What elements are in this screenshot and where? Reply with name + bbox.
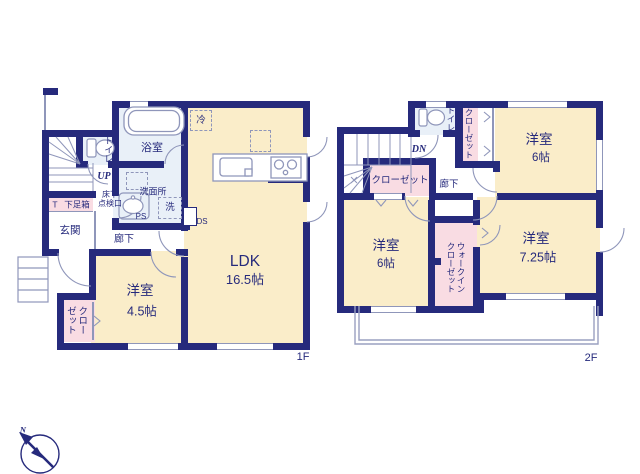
label-floor-1f: 1F (297, 352, 310, 364)
duct-space-box (183, 207, 197, 226)
window (217, 343, 273, 350)
wall (42, 249, 59, 256)
label-washer: 洗 (165, 203, 175, 213)
label-hallway-1f: 廊下 (114, 235, 134, 246)
label-washroom: 洗面所 (139, 187, 166, 196)
wall-wic-stub (428, 258, 441, 265)
wall (408, 130, 420, 137)
wall (181, 257, 188, 350)
label-toilet-2f: トイレ (446, 104, 456, 134)
wall (112, 161, 164, 168)
room-6sw-fill (339, 197, 432, 310)
label-fridge: 冷 (196, 116, 206, 126)
label-floor-2f: 2F (585, 353, 598, 365)
label-hatch-2: 点検口 (98, 200, 122, 208)
ldk-side-door-arc2 (307, 202, 327, 222)
label-shoebox-t: T (52, 201, 57, 210)
label-bath: 浴室 (141, 143, 163, 155)
wall (337, 127, 415, 134)
label-dn: DN (412, 145, 426, 156)
wall (363, 158, 370, 200)
room-bath-fill (113, 103, 185, 165)
wall (455, 101, 463, 168)
label-toilet-1f: トイレ (103, 133, 114, 165)
wall (303, 157, 310, 202)
wall (493, 161, 500, 172)
wall (76, 130, 83, 168)
wall (596, 252, 603, 316)
cupboard-space (250, 130, 271, 152)
window (506, 293, 565, 300)
wall (402, 193, 405, 200)
label-bedroom45-size: 4.5帖 (127, 305, 157, 318)
window (128, 343, 178, 350)
label-bedroom-sw: 洋室 (373, 239, 400, 253)
wall (337, 127, 344, 313)
label-ldk: LDK (230, 254, 260, 270)
wall (428, 200, 435, 313)
label-bedroom-ne: 洋室 (526, 133, 553, 147)
label-shoebox: 下足箱 (64, 201, 90, 210)
compass-icon (19, 432, 59, 473)
porch-edge-line (44, 95, 46, 130)
label-entrance: 玄関 (60, 225, 81, 236)
label-bedroom45: 洋室 (127, 284, 154, 298)
wall (363, 158, 436, 165)
wall (430, 193, 473, 200)
window (130, 101, 148, 108)
closet-hall-opening (374, 193, 402, 200)
label-closet-ne: クローゼット (464, 105, 474, 161)
ldk-side-door-arc (307, 137, 327, 157)
wall (497, 193, 603, 200)
label-bedroom-ne-size: 6帖 (532, 152, 550, 164)
entrance-door-arc (58, 253, 91, 286)
wall (112, 223, 190, 230)
room-725-fill (477, 197, 600, 297)
floor-plan-canvas: 浴室 洗面所 トイレ UP T 下足箱 玄関 廊下 洋室 4.5帖 クローゼット… (0, 0, 640, 474)
wall (303, 101, 310, 137)
balcony-door-arc (600, 228, 624, 252)
label-bedroom-se-size: 7.25帖 (520, 251, 557, 264)
wall (473, 200, 480, 225)
closet1f-opening (92, 302, 94, 340)
window (596, 140, 603, 190)
label-bedroom-se: 洋室 (523, 232, 550, 246)
wall (596, 101, 603, 140)
label-wic: ウォークインクローゼット (446, 240, 466, 294)
window (508, 101, 567, 108)
wall (429, 158, 436, 200)
wall (268, 176, 303, 183)
window (371, 306, 416, 313)
label-ds: DS (196, 218, 207, 226)
wall (303, 222, 310, 350)
label-closet-hall: クローゼット (371, 176, 428, 186)
wall (184, 161, 188, 168)
wall-stub-top-left (43, 88, 58, 95)
label-closet-1f: クローゼット (65, 305, 87, 335)
label-bedroom-sw-size: 6帖 (377, 258, 395, 270)
wall (176, 249, 188, 256)
wall (89, 249, 151, 256)
label-up: UP (97, 172, 110, 183)
entrance-steps (18, 257, 48, 302)
closet-ne-opening (492, 108, 494, 161)
wall (57, 293, 64, 345)
label-compass-north: N (20, 426, 26, 435)
label-hallway-2f: 廊下 (439, 180, 458, 190)
window (426, 101, 446, 108)
label-ps: PS (136, 213, 147, 221)
room-6ne-fill (495, 103, 601, 198)
wall (42, 191, 96, 198)
wall (473, 247, 480, 313)
label-ldk-size: 16.5帖 (226, 273, 264, 287)
shoebox-divider (49, 211, 93, 212)
room-bedroom45-fill (91, 251, 186, 347)
genkan-step-line (94, 211, 96, 249)
